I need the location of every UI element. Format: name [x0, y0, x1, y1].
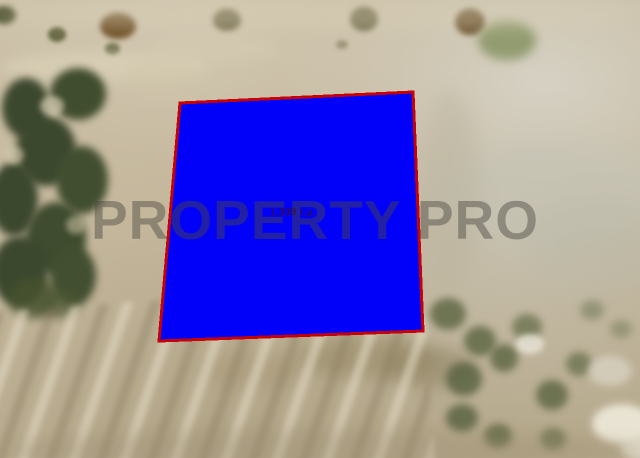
parcel-area-label: 1.338 τ.μ.	[233, 207, 353, 218]
aerial-parcel-view: PROPERTY PRO 1.338 τ.μ.	[0, 0, 640, 458]
parcel-overlay-svg	[0, 0, 640, 458]
